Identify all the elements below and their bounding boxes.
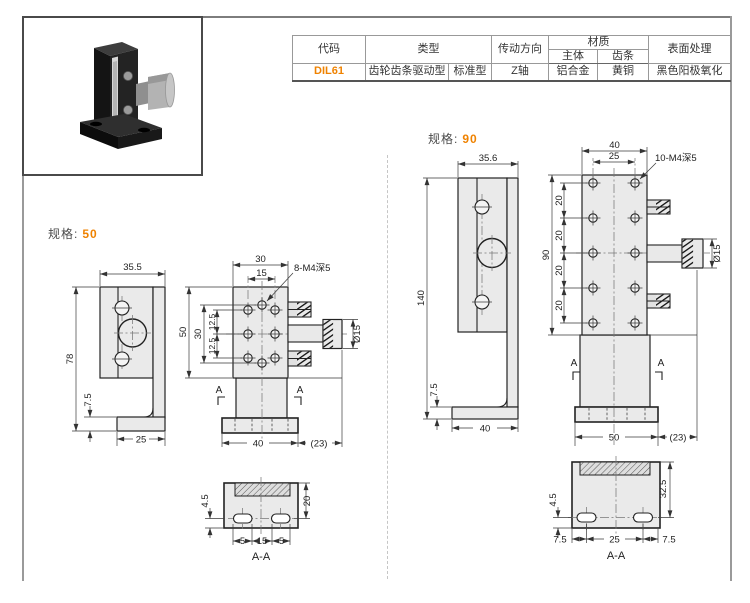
dim-sec50-h-top: 20 (302, 496, 313, 507)
dim-front90-top-w: 40 (609, 140, 620, 151)
label-front90-holes: 10-M4深5 (655, 153, 697, 164)
dim-front50-span: 30 (193, 329, 204, 340)
side-view-50: 35.5 78 7.5 25 (65, 262, 165, 446)
header-type: 类型 (366, 36, 492, 64)
header-direction: 传动方向 (492, 36, 549, 64)
dim-sec50-w-right: 5 (279, 536, 284, 547)
dim-sec90-w-right: 7.5 (662, 534, 675, 545)
section-mark-a-right-50: A (297, 385, 304, 396)
dim-front90-pitch-4: 20 (554, 300, 565, 311)
dim-side90-base-h: 7.5 (429, 383, 440, 396)
spec-table: 代码 类型 传动方向 材质 表面处理 主体 齿条 DIL61 齿轮齿条驱动型 标… (292, 35, 731, 82)
dim-sec90-h-top: 32.5 (658, 480, 669, 499)
product-photo-box (22, 16, 203, 176)
dim-front50-knob-len: (23) (311, 438, 328, 449)
dim-front90-height: 90 (541, 250, 552, 261)
dim-side90-width: 35.6 (479, 153, 498, 164)
dim-front90-knob-dia: Ø15 (712, 245, 723, 263)
dim-side90-base-w: 40 (480, 423, 491, 434)
stage-knob (136, 73, 175, 110)
front-view-50: 30 15 8-M4深5 50 30 12.5 12.5 Ø15 A (178, 254, 360, 449)
clamp-top-90 (647, 200, 670, 214)
dim-front90-knob-len: (23) (670, 432, 687, 443)
clamp-bottom-90 (647, 294, 670, 308)
section-view-90: 32.5 4.5 7.5 25 7.5 A-A (548, 456, 676, 562)
knob-90 (647, 239, 703, 268)
dim-front50-top-holes: 15 (256, 268, 267, 279)
clamp-bottom-50 (288, 351, 311, 366)
cell-surface: 黑色阳极氧化 (649, 63, 731, 81)
header-surface: 表面处理 (649, 36, 731, 64)
stage-body (94, 42, 138, 128)
cell-type-main: 齿轮齿条驱动型 (366, 63, 449, 81)
dim-side50-width: 35.5 (123, 262, 142, 273)
cell-material-body: 铝合金 (549, 63, 598, 81)
section-mark-a-right-90: A (658, 358, 665, 369)
catalog-page: 代码 类型 传动方向 材质 表面处理 主体 齿条 DIL61 齿轮齿条驱动型 标… (0, 0, 750, 603)
dim-sec50-w-left: 5 (240, 536, 245, 547)
label-front50-holes: 8-M4深5 (294, 263, 330, 274)
dim-front50-height: 50 (178, 327, 189, 338)
dim-front90-pitch-3: 20 (554, 265, 565, 276)
section-divider (387, 155, 388, 579)
header-material-rack: 齿条 (598, 49, 649, 63)
section-label-50: A-A (252, 551, 271, 563)
cell-code: DIL61 (293, 63, 366, 81)
dim-sec90-h-bottom: 4.5 (548, 493, 559, 506)
dim-sec50-h-bottom: 4.5 (200, 494, 211, 507)
clamp-top-50 (288, 302, 311, 317)
header-material-body: 主体 (549, 49, 598, 63)
cell-material-rack: 黄铜 (598, 63, 649, 81)
section-mark-a-left-50: A (216, 385, 223, 396)
side-view-90: 35.6 140 7.5 40 (416, 153, 518, 434)
technical-drawing-spec50: 35.5 78 7.5 25 (40, 245, 360, 575)
knob-50 (288, 320, 342, 349)
section-view-50: 20 4.5 5 15 5 A-A (200, 477, 313, 563)
header-code: 代码 (293, 36, 366, 64)
dim-side50-base-h: 7.5 (83, 393, 94, 406)
front-view-90: 40 25 10-M4深5 90 20 20 20 20 Ø15 A (541, 140, 723, 446)
dim-front90-pitch-2: 20 (554, 230, 565, 241)
header-material: 材质 (549, 36, 649, 50)
dim-front50-pitch-a: 12.5 (207, 313, 217, 330)
dim-front50-knob-dia: Ø15 (352, 325, 360, 343)
dim-side90-height: 140 (416, 290, 427, 306)
dim-front90-top-holes: 25 (609, 151, 620, 162)
spec-label-50: 规格:50 (48, 225, 98, 242)
dim-front90-pitch-1: 20 (554, 195, 565, 206)
spec-label-50-text: 规格: (48, 227, 78, 241)
dim-sec90-w-mid: 25 (609, 534, 620, 545)
product-photo-image (24, 18, 201, 174)
dim-side50-height: 78 (65, 354, 76, 365)
section-mark-a-left-90: A (571, 358, 578, 369)
dim-side50-base-w: 25 (136, 435, 147, 446)
technical-drawing-spec90: 35.6 140 7.5 40 (415, 140, 740, 572)
dim-front50-top-w: 30 (255, 254, 266, 265)
dim-front90-base-w: 50 (609, 432, 620, 443)
cell-direction: Z轴 (492, 63, 549, 81)
dim-sec90-w-left: 7.5 (553, 534, 566, 545)
clamp-screw-bottom (124, 106, 133, 115)
section-label-90: A-A (607, 550, 626, 562)
stage-base (80, 114, 162, 149)
dim-front50-base-w: 40 (253, 438, 264, 449)
cell-type-sub: 标准型 (449, 63, 492, 81)
clamp-screw-top (124, 72, 133, 81)
dim-sec50-w-mid: 15 (257, 536, 268, 547)
dim-front50-pitch-b: 12.5 (207, 337, 217, 354)
spec-label-50-value: 50 (82, 227, 97, 241)
